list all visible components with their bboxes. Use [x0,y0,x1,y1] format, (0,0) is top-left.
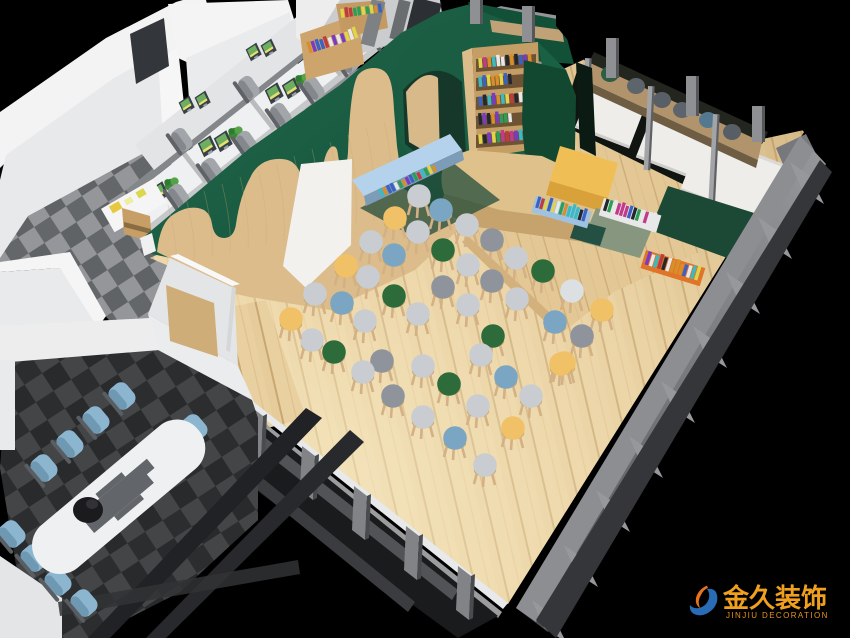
svg-text:JINJIU DECORATION: JINJIU DECORATION [726,611,829,620]
svg-text:金久装饰: 金久装饰 [722,583,827,613]
